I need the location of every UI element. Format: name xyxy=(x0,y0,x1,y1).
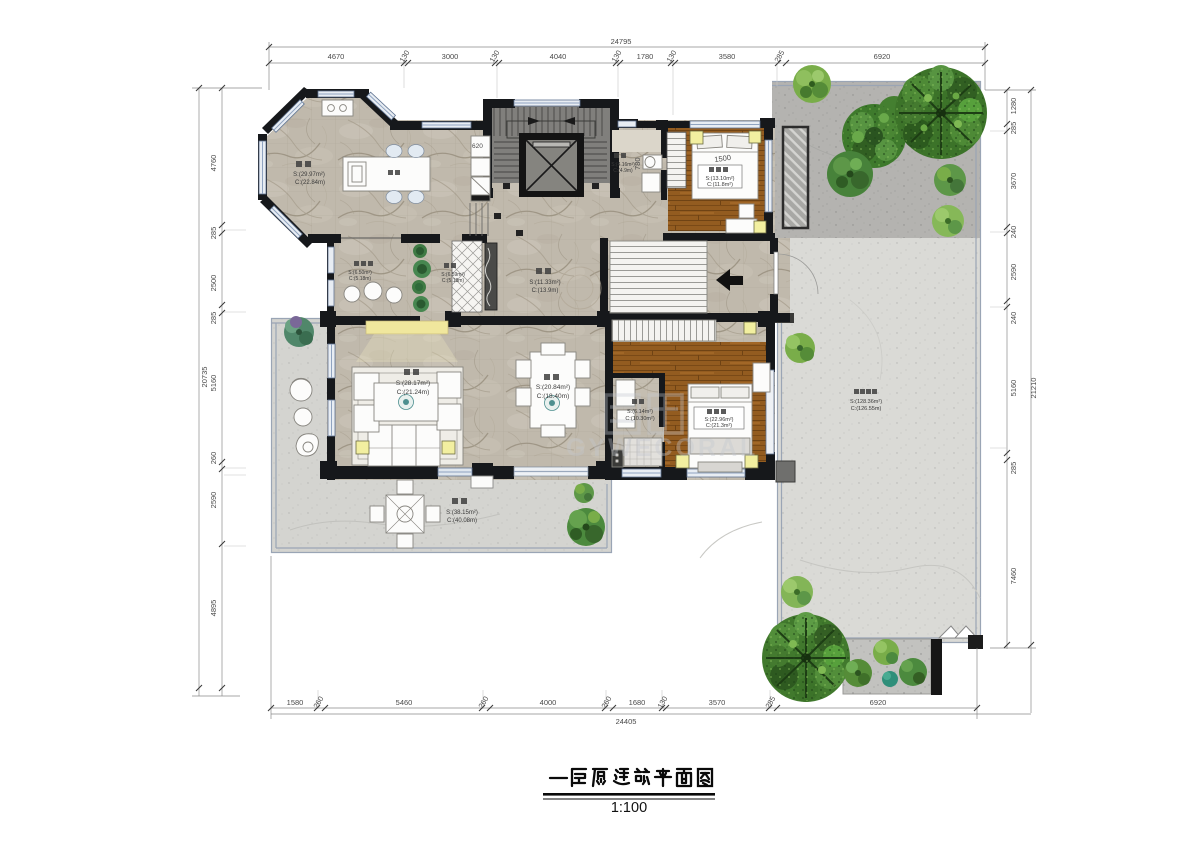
svg-text:5160: 5160 xyxy=(209,375,218,392)
svg-text:3580: 3580 xyxy=(719,52,736,61)
svg-text:1680: 1680 xyxy=(629,698,646,707)
svg-text:4040: 4040 xyxy=(550,52,567,61)
svg-text:C:(21.3m²): C:(21.3m²) xyxy=(706,423,732,429)
svg-text:4000: 4000 xyxy=(540,698,557,707)
svg-text:C:(4.9m): C:(4.9m) xyxy=(613,168,633,174)
svg-text:5460: 5460 xyxy=(396,698,413,707)
svg-text:24795: 24795 xyxy=(611,37,632,46)
svg-text:C:(40.08m): C:(40.08m) xyxy=(447,518,477,524)
svg-text:6920: 6920 xyxy=(874,52,891,61)
svg-text:C:(13.9m): C:(13.9m) xyxy=(532,288,559,294)
svg-text:285: 285 xyxy=(209,227,218,240)
svg-text:1:100: 1:100 xyxy=(611,800,647,816)
svg-text:C:(11.8m²): C:(11.8m²) xyxy=(707,182,733,188)
svg-text:24405: 24405 xyxy=(616,717,637,726)
svg-text:3000: 3000 xyxy=(442,52,459,61)
svg-text:S:(20.84m²): S:(20.84m²) xyxy=(536,384,570,391)
svg-text:1580: 1580 xyxy=(287,698,304,707)
svg-text:5160: 5160 xyxy=(1009,380,1018,397)
svg-text:S:(29.97m²): S:(29.97m²) xyxy=(293,172,325,178)
svg-text:S:(128.36m²): S:(128.36m²) xyxy=(850,399,882,405)
svg-text:4670: 4670 xyxy=(328,52,345,61)
svg-text:20735: 20735 xyxy=(200,367,209,388)
svg-text:C:(22.84m): C:(22.84m) xyxy=(295,180,325,186)
svg-text:620: 620 xyxy=(472,143,483,150)
svg-text:4760: 4760 xyxy=(209,155,218,172)
svg-text:C:(5.18m): C:(5.18m) xyxy=(349,276,372,282)
svg-text:S:(28.17m²): S:(28.17m²) xyxy=(396,380,430,387)
svg-text:7460: 7460 xyxy=(1009,568,1018,585)
svg-text:C:(10.30m²): C:(10.30m²) xyxy=(625,416,655,422)
svg-text:C:(21.24m): C:(21.24m) xyxy=(397,389,430,396)
svg-text:285: 285 xyxy=(1009,462,1018,475)
svg-text:2500: 2500 xyxy=(209,275,218,292)
svg-text:S:(38.15m²): S:(38.15m²) xyxy=(446,510,478,516)
svg-text:240: 240 xyxy=(1009,312,1018,325)
svg-text:S:(6.14m²): S:(6.14m²) xyxy=(627,409,653,415)
svg-text:C:(18.40m): C:(18.40m) xyxy=(537,393,570,400)
svg-text:2590: 2590 xyxy=(209,492,218,509)
svg-text:1780: 1780 xyxy=(637,52,654,61)
svg-text:240: 240 xyxy=(1009,226,1018,239)
svg-text:4895: 4895 xyxy=(209,600,218,617)
svg-text:3570: 3570 xyxy=(709,698,726,707)
svg-text:21210: 21210 xyxy=(1029,378,1038,399)
svg-text:3670: 3670 xyxy=(1009,173,1018,190)
svg-text:2590: 2590 xyxy=(1009,264,1018,281)
svg-text:260: 260 xyxy=(209,452,218,465)
svg-text:GYWECORAL: GYWECORAL xyxy=(566,434,758,462)
svg-text:C:(5.18m): C:(5.18m) xyxy=(442,278,465,284)
svg-text:285: 285 xyxy=(1009,122,1018,135)
svg-text:S:(11.33m²): S:(11.33m²) xyxy=(529,280,560,286)
svg-text:C:(126.55m): C:(126.55m) xyxy=(851,406,882,412)
svg-text:285: 285 xyxy=(209,312,218,325)
svg-text:1280: 1280 xyxy=(1009,98,1018,115)
svg-text:6920: 6920 xyxy=(870,698,887,707)
